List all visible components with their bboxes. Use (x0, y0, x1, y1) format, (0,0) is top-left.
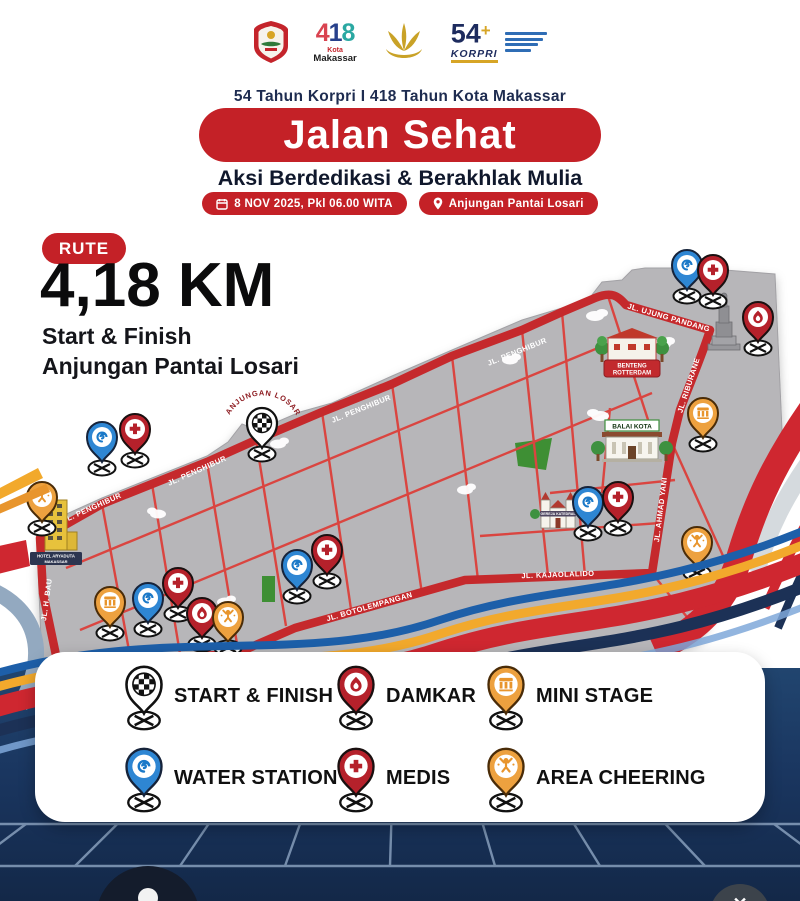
date-pill: 8 NOV 2025, Pkl 06.00 WITA (202, 192, 406, 215)
legend-card: START & FINISH DAMKAR MINI STAGE WATER S… (35, 652, 765, 822)
area-cheering-pin (27, 482, 57, 536)
damkar-pin (187, 598, 217, 652)
medis-pin-icon (335, 743, 377, 813)
water-station-pin-icon (123, 743, 165, 813)
damkar-pin-icon (335, 661, 377, 731)
title-banner: Jalan Sehat (199, 108, 601, 162)
svg-text:GEREJA KATEDRAL: GEREJA KATEDRAL (540, 512, 576, 516)
close-icon: ✕ (732, 894, 747, 901)
cheering-pin-icon (485, 743, 527, 813)
mini-stage-pin-icon (485, 661, 527, 731)
damkar-pin (743, 302, 773, 356)
water-station-pin (133, 583, 163, 637)
legend-item-start-finish: START & FINISH (123, 661, 335, 731)
start-area-curved-label: ANJUNGAN LOSARI (10, 251, 303, 417)
legend-item-area-cheering: AREA CHEERING (485, 743, 706, 813)
medis-pin (698, 255, 728, 309)
medis-pin (312, 535, 342, 589)
legend-item-medis: MEDIS (335, 743, 485, 813)
svg-text:ANJUNGAN LOSARI: ANJUNGAN LOSARI (10, 251, 303, 417)
water-station-pin (573, 487, 603, 541)
route-map: JL. PENGHIBUR JL. PENGHIBUR JL. PENGHIBU… (10, 228, 790, 718)
mini-stage-pin (95, 587, 125, 641)
legend-item-damkar: DAMKAR (335, 661, 485, 731)
svg-text:ROTTERDAM: ROTTERDAM (613, 371, 651, 377)
legend-item-mini-stage: MINI STAGE (485, 661, 653, 731)
event-line: 54 Tahun Korpri I 418 Tahun Kota Makassa… (0, 88, 800, 106)
water-station-pin (282, 550, 312, 604)
page-title: Jalan Sehat (283, 113, 516, 158)
korpri-emblem (381, 21, 427, 63)
poster: 418 Kota Makassar 54+ KORPRI 54 Tahun Ko… (0, 0, 800, 901)
medis-pin (603, 482, 633, 536)
korpri-54-tagline-lines (505, 32, 547, 52)
svg-text:MAKASSAR: MAKASSAR (44, 559, 67, 564)
svg-text:BENTENG: BENTENG (617, 364, 647, 370)
418-anniversary-logo: 418 Kota Makassar (313, 21, 356, 64)
water-station-pin (87, 422, 117, 476)
logo-row: 418 Kota Makassar 54+ KORPRI (0, 14, 800, 70)
park-strip (262, 576, 275, 602)
location-pin-icon (433, 197, 443, 210)
area-cheering-pin (682, 527, 712, 581)
svg-text:HOTEL ARYADUTA: HOTEL ARYADUTA (37, 554, 75, 559)
subtitle: Aksi Berdedikasi & Berakhlak Mulia (0, 166, 800, 191)
location-pill: Anjungan Pantai Losari (419, 192, 598, 215)
korpri-54-logo: 54+ KORPRI (451, 21, 547, 62)
dot-icon (138, 888, 158, 901)
start-finish-pin-icon (123, 661, 165, 731)
svg-text:BALAI KOTA: BALAI KOTA (612, 424, 652, 431)
start-finish-pin (247, 408, 277, 462)
area-cheering-pin (213, 602, 243, 656)
medis-pin (120, 414, 150, 468)
mini-stage-pin (688, 398, 718, 452)
water-station-pin (672, 250, 702, 304)
legend-item-water-station: WATER STATION (123, 743, 335, 813)
calendar-icon (216, 198, 228, 210)
makassar-city-logo (253, 20, 289, 64)
